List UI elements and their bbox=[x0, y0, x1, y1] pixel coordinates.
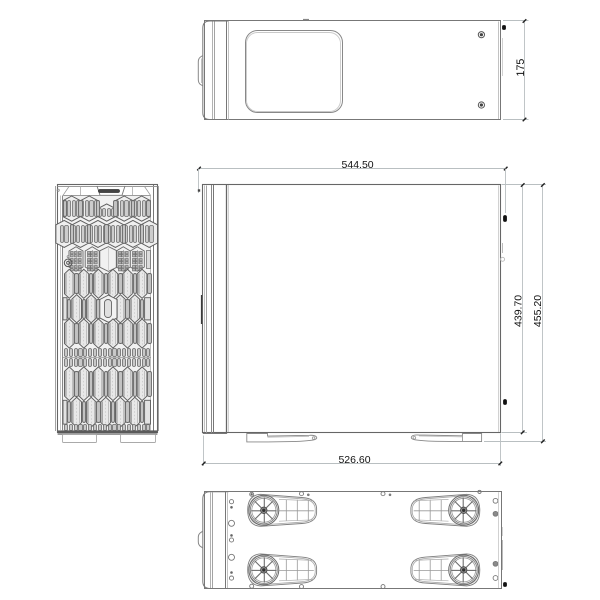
svg-text:526.60: 526.60 bbox=[338, 454, 370, 466]
svg-text:455.20: 455.20 bbox=[532, 295, 544, 327]
svg-text:175: 175 bbox=[515, 59, 527, 77]
svg-text:544.50: 544.50 bbox=[342, 159, 374, 171]
svg-text:439.70: 439.70 bbox=[513, 295, 525, 327]
